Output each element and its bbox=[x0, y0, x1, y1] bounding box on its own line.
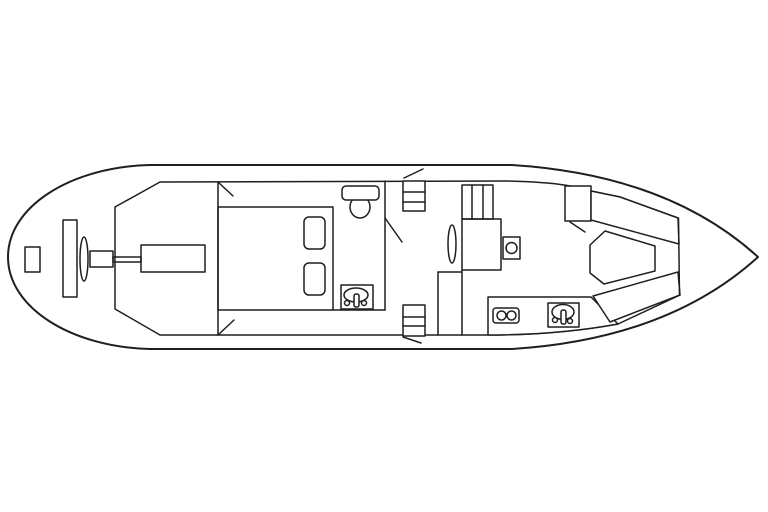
head-sink-faucet bbox=[354, 294, 359, 307]
engine-block bbox=[141, 245, 205, 272]
pillow-bottom bbox=[304, 263, 325, 295]
propeller-shaft bbox=[113, 257, 141, 262]
boat-deck-plan bbox=[0, 0, 768, 512]
door-swing-aft-cabin-top bbox=[218, 182, 233, 196]
wardrobe bbox=[462, 185, 493, 219]
propeller bbox=[80, 237, 88, 281]
door-swing-aft-cabin-bottom bbox=[218, 320, 234, 335]
vberth-seat-corner-line bbox=[570, 222, 585, 232]
head-sink-knob-left bbox=[345, 301, 350, 306]
pillow-top bbox=[304, 217, 325, 249]
helm-wheel bbox=[506, 243, 517, 254]
hatch-line-top bbox=[404, 169, 423, 178]
companionway-steps-bottom bbox=[403, 305, 425, 336]
shaft-coupling bbox=[90, 251, 113, 267]
hatch-line-bottom bbox=[403, 337, 421, 343]
boat-deck-plan-canvas bbox=[0, 0, 768, 512]
rudder-plate bbox=[63, 220, 77, 297]
head-sink-knob-right bbox=[362, 301, 367, 306]
mast bbox=[448, 225, 456, 263]
door-swing-head bbox=[385, 218, 402, 242]
chart-table bbox=[462, 219, 501, 270]
toilet-tank bbox=[342, 186, 379, 200]
engine-room-bulkhead bbox=[115, 182, 160, 335]
vberth-table bbox=[590, 231, 655, 284]
galley-sink-faucet bbox=[561, 310, 566, 324]
steering-gear-box bbox=[25, 247, 40, 272]
vberth-seat bbox=[565, 186, 591, 221]
forepeak-bulkhead bbox=[679, 218, 680, 295]
companionway-steps-top bbox=[403, 181, 425, 211]
